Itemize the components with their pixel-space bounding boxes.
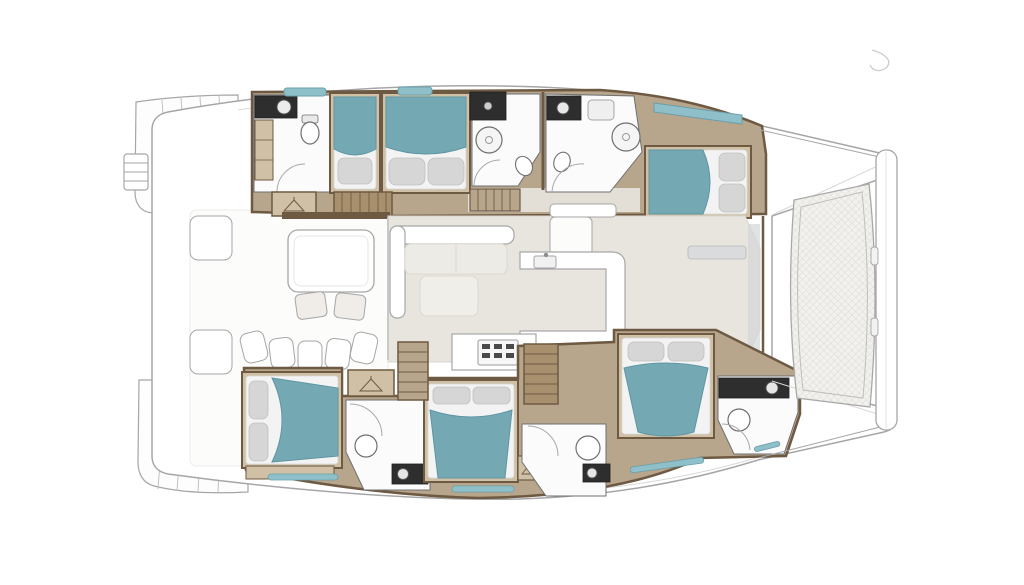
sofa-back-vertical bbox=[390, 226, 405, 318]
top-aft-head-cabinet bbox=[255, 120, 273, 180]
btm-aft-pillow-2 bbox=[249, 423, 268, 461]
trampoline bbox=[791, 184, 876, 407]
btm-mid-toilet bbox=[576, 436, 600, 460]
btm-mid-duvet bbox=[430, 410, 512, 478]
mid-head1-shower bbox=[476, 127, 502, 153]
mid-head2-shower bbox=[612, 123, 640, 151]
mid-head1-faucet bbox=[484, 102, 492, 110]
btm-fwd-duvet bbox=[624, 363, 708, 436]
bed-top3-pillow-2 bbox=[719, 184, 745, 212]
btm-aft-duvet bbox=[272, 378, 338, 462]
bed-top3-duvet bbox=[649, 150, 710, 214]
stove bbox=[478, 340, 518, 365]
skylight-1 bbox=[284, 88, 326, 96]
top-aft-head-sink bbox=[277, 100, 291, 114]
crossbeam-cleat-2 bbox=[871, 318, 878, 336]
cockpit-side-seat-2 bbox=[190, 330, 232, 374]
nav-seat-bar bbox=[550, 204, 616, 217]
galley-faucet bbox=[544, 253, 548, 257]
wardrobe-btm bbox=[348, 370, 394, 396]
btm-fwd-pillow-2 bbox=[668, 342, 704, 361]
btm-aft-sink bbox=[398, 469, 409, 480]
hull-window-1 bbox=[268, 474, 338, 480]
aft-bench-seg-4 bbox=[324, 338, 351, 371]
btm-fwd-sink bbox=[766, 382, 778, 394]
bed-top3-pillow-1 bbox=[719, 153, 745, 181]
salon-aft-wall bbox=[282, 212, 390, 219]
stairs-top-hull bbox=[470, 189, 520, 211]
cockpit-chair-1 bbox=[294, 291, 327, 320]
cockpit-table bbox=[288, 230, 374, 292]
catamaran-floor-plan bbox=[0, 0, 1024, 585]
btm-aft-pillow-1 bbox=[249, 381, 268, 419]
btm-mid-pillow-1 bbox=[433, 387, 470, 404]
salon-front-console bbox=[688, 246, 746, 259]
btm-fwd-pillow-1 bbox=[628, 342, 664, 361]
mid-head2-sink bbox=[557, 102, 569, 114]
cockpit-chair-2 bbox=[334, 292, 367, 320]
mid-head2-tray bbox=[588, 100, 614, 120]
sofa-chaise bbox=[420, 276, 478, 316]
windshield-band bbox=[748, 224, 760, 354]
bed-top2-pillow-2 bbox=[428, 158, 464, 185]
bed-top2-duvet bbox=[386, 97, 466, 154]
stairs-salon-left bbox=[398, 342, 428, 400]
btm-fwd-toilet bbox=[728, 409, 750, 431]
skylight-2 bbox=[398, 87, 432, 95]
top-aft-toilet bbox=[301, 122, 319, 144]
galley-sink bbox=[534, 256, 556, 268]
bed-top1-duvet bbox=[334, 97, 376, 155]
bed-top2-pillow-1 bbox=[389, 158, 425, 185]
btm-mid-sink bbox=[587, 468, 597, 478]
cockpit-side-seat-1 bbox=[190, 216, 232, 260]
plan-root bbox=[0, 0, 1024, 585]
aft-bench-seg-2 bbox=[268, 337, 295, 370]
aft-bench-seg-3 bbox=[298, 341, 322, 371]
hull-window-2 bbox=[452, 486, 514, 492]
crossbeam-cleat-1 bbox=[871, 247, 878, 265]
bed-top1-pillow bbox=[338, 158, 372, 184]
floor-plan-svg bbox=[0, 0, 1024, 585]
btm-aft-toilet bbox=[355, 435, 377, 457]
btm-mid-pillow-2 bbox=[473, 387, 510, 404]
btm-fwd-counter bbox=[719, 378, 789, 398]
sofa-back-horizontal bbox=[390, 226, 514, 244]
